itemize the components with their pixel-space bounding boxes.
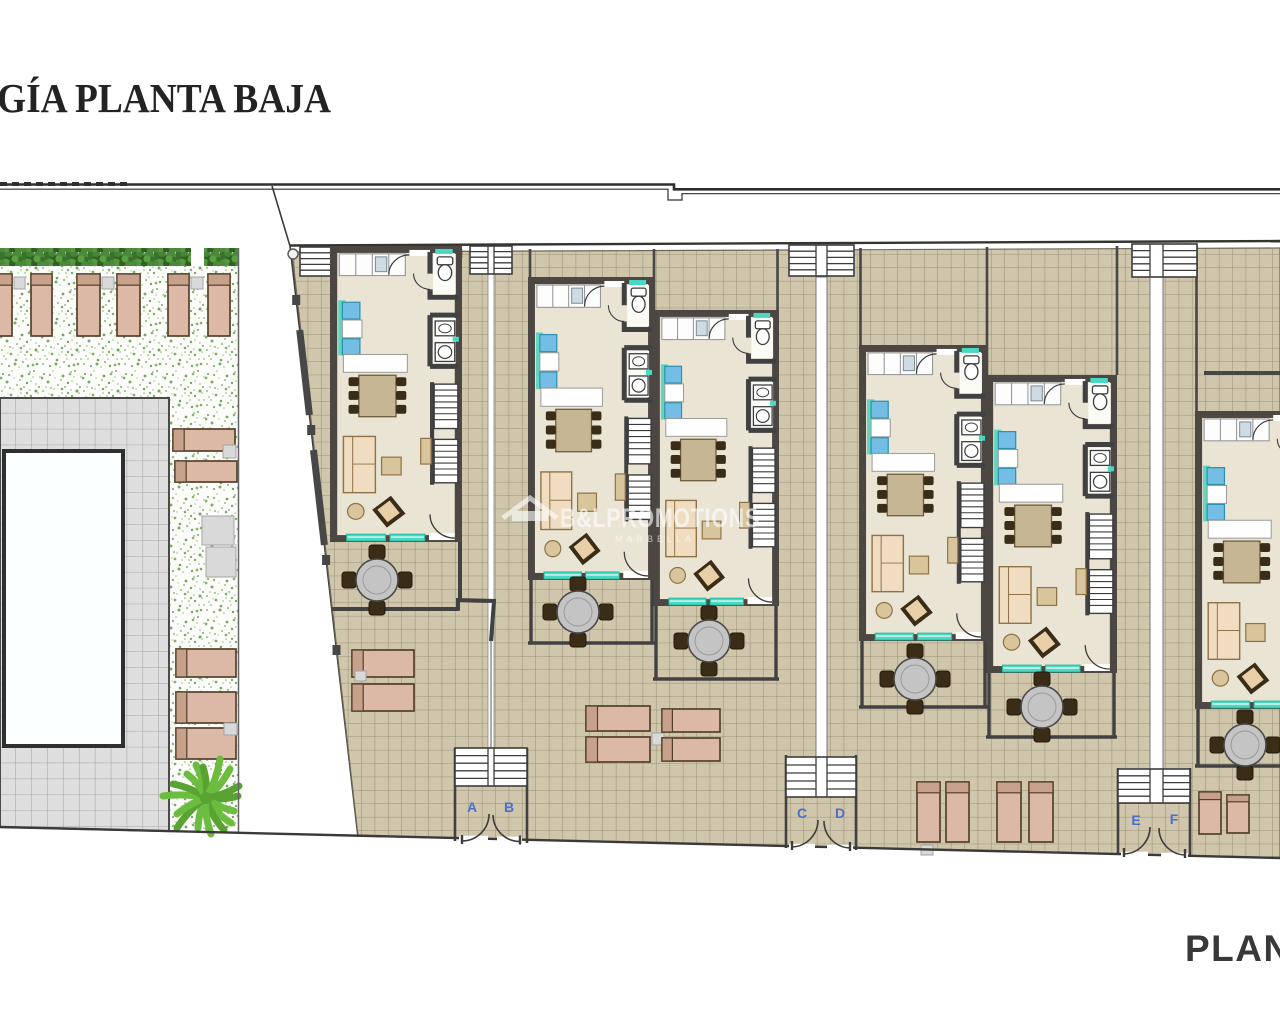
svg-text:B: B	[504, 799, 514, 815]
svg-text:PLANTA: PLANTA	[1185, 928, 1280, 969]
svg-text:E: E	[1131, 812, 1140, 828]
svg-text:C: C	[797, 805, 807, 821]
svg-text:A: A	[467, 799, 477, 815]
svg-text:GÍA PLANTA BAJA: GÍA PLANTA BAJA	[0, 75, 331, 121]
svg-text:MARBELLA: MARBELLA	[615, 534, 695, 544]
svg-text:B&LPROMOTIONS: B&LPROMOTIONS	[560, 503, 760, 533]
svg-text:D: D	[835, 805, 845, 821]
svg-text:F: F	[1170, 811, 1179, 827]
